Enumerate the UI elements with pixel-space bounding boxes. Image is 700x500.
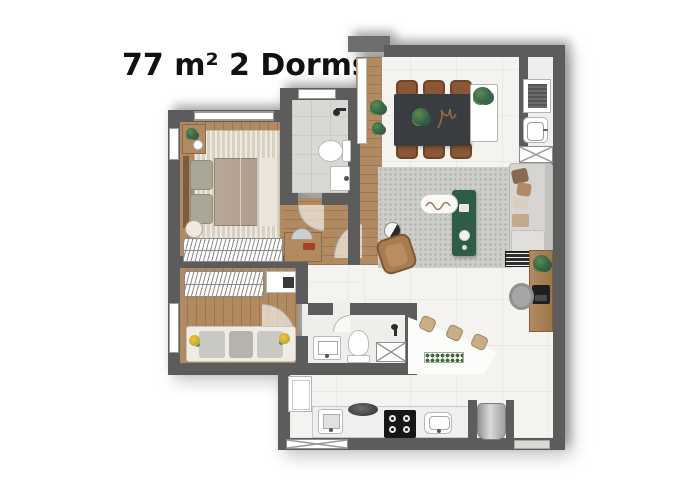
burner (389, 426, 396, 433)
table-decor-squiggle (434, 104, 458, 134)
dining-table (394, 94, 470, 146)
wardrobe-bedroom2 (184, 271, 264, 297)
wall-bottom-bedroom2 (168, 363, 417, 375)
entry-door-leaf (357, 58, 367, 144)
tank-basin (527, 122, 544, 141)
desk-plant (533, 255, 550, 271)
laundry-tank (523, 117, 548, 143)
media-console (505, 251, 531, 267)
wall-shelf-bedroom2 (266, 271, 296, 293)
washer-nook-wall-left (468, 400, 477, 440)
nightstand-plant (186, 128, 197, 139)
nightstand-bottom-lamp (185, 220, 203, 238)
burner (403, 415, 410, 422)
sofa-pillow (516, 182, 532, 197)
bed2-flowers (279, 333, 290, 344)
wall-bathroom1-bottom-left (280, 193, 298, 205)
burner (403, 426, 410, 433)
wall-right-exterior (553, 45, 565, 450)
washer-door (528, 84, 547, 108)
bed-master (183, 156, 277, 228)
window-bedroom1-left (169, 128, 179, 160)
bed-headboard (183, 156, 189, 228)
wall-bathroom1-bottom-right (322, 193, 360, 205)
entry-plant (370, 100, 385, 114)
bed-bedroom2 (186, 326, 296, 362)
floor-plan-canvas: 77 m² 2 Dorms (0, 0, 700, 500)
cooktop (384, 410, 416, 438)
desk-laptop (532, 285, 550, 304)
floor-plan (0, 0, 700, 500)
kitchen-sink (424, 412, 452, 434)
wall-bathroom2-top-left (308, 303, 333, 315)
shower-head-bathroom1 (333, 109, 340, 116)
island-herb-planter (424, 352, 464, 363)
shelf-decor (283, 277, 294, 288)
sideboard-plant (473, 87, 492, 104)
desk-chair (509, 283, 534, 310)
sofa-pillow (513, 197, 528, 209)
table-centerpiece-plant (412, 108, 429, 125)
kitchen-sink-basin (429, 416, 450, 430)
cooking-pot (348, 403, 378, 416)
bed-sheet (257, 158, 277, 226)
laptop-keyboard (535, 295, 547, 301)
bed2-flowers (189, 335, 200, 346)
washer-nook-wall-right (506, 400, 514, 440)
washing-machine-kitchen (477, 403, 506, 440)
toilet-bathroom2 (346, 330, 372, 363)
sink-faucet-bathroom1 (344, 176, 349, 181)
coffee-table-bowl (459, 230, 470, 241)
dressing-decor (303, 243, 315, 250)
nightstand-lamp (193, 140, 203, 150)
wall-bathroom1-left (280, 88, 292, 205)
bed-duvet-fold (240, 158, 241, 226)
wardrobe-bedroom1 (183, 238, 283, 262)
refrigerator-door (292, 380, 310, 410)
sofa-backrest (545, 164, 552, 264)
washing-machine-laundry (523, 79, 551, 113)
toilet2-bowl (348, 330, 369, 356)
wall-bedroom2-right-upper (296, 256, 308, 304)
prep-sink-faucet (329, 428, 333, 432)
utility-shaft (519, 146, 553, 163)
shower-head-bathroom2 (391, 324, 398, 330)
bed2-cushion (199, 331, 225, 358)
entry-plant (372, 122, 384, 134)
bed-pillow (190, 160, 213, 190)
window-bedroom2-left (169, 303, 179, 353)
kitchen-vent-window (286, 439, 348, 449)
serving-tray (420, 194, 458, 214)
coffee-table-cup (462, 245, 467, 250)
bed2-cushion (229, 331, 253, 358)
burner (389, 415, 396, 422)
toilet-bowl (318, 140, 343, 162)
sink-bathroom2 (313, 336, 341, 360)
window-bedroom1-top (194, 111, 274, 121)
toilet-bathroom1 (318, 138, 352, 164)
kitchen-prep-sink (318, 409, 343, 434)
kitchen-sink-faucet (437, 429, 441, 433)
shower-tray-bathroom2 (376, 342, 406, 362)
sink2-basin (318, 341, 338, 355)
sink2-faucet (325, 354, 329, 358)
tray-squiggle (421, 195, 457, 213)
window-bathroom1 (298, 89, 336, 99)
wall-top-dining (384, 45, 565, 57)
coffee-table-book (459, 204, 469, 212)
prep-sink-basin (323, 414, 340, 429)
refrigerator (288, 376, 312, 412)
toilet2-tank (347, 355, 370, 363)
service-door-threshold (514, 440, 550, 449)
wall-bedroom2-right-lower (296, 336, 308, 375)
armchair-seat (383, 242, 409, 269)
toilet-tank (342, 140, 351, 162)
sofa-throw (512, 214, 529, 227)
tank-faucet (543, 129, 548, 131)
